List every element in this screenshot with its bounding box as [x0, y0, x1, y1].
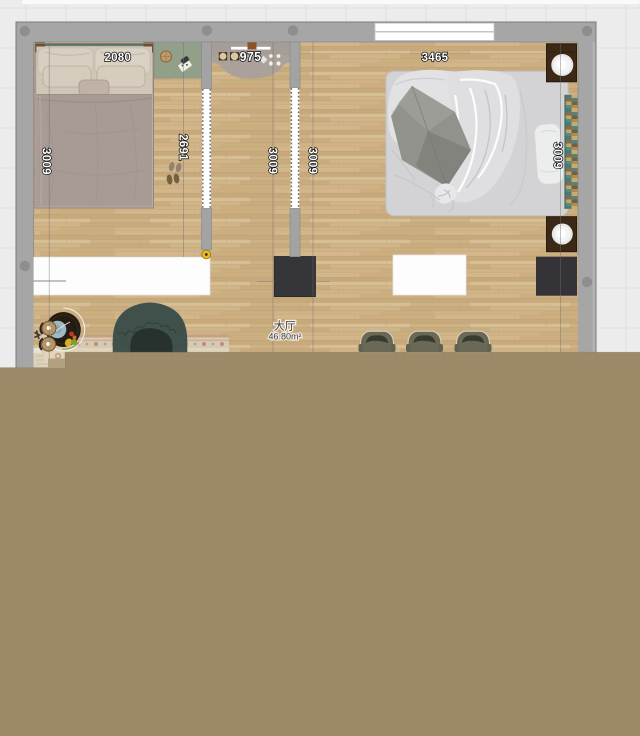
- svg-text:46.80m²: 46.80m²: [268, 332, 301, 342]
- svg-text:975: 975: [240, 50, 262, 64]
- svg-text:3009: 3009: [306, 148, 318, 175]
- svg-text:3465: 3465: [422, 52, 449, 64]
- svg-text:3009: 3009: [40, 148, 52, 175]
- svg-text:3009: 3009: [551, 142, 563, 169]
- svg-text:2080: 2080: [104, 52, 131, 64]
- svg-text:大厅: 大厅: [274, 319, 296, 333]
- svg-text:2691: 2691: [177, 134, 189, 161]
- svg-text:3009: 3009: [266, 148, 278, 175]
